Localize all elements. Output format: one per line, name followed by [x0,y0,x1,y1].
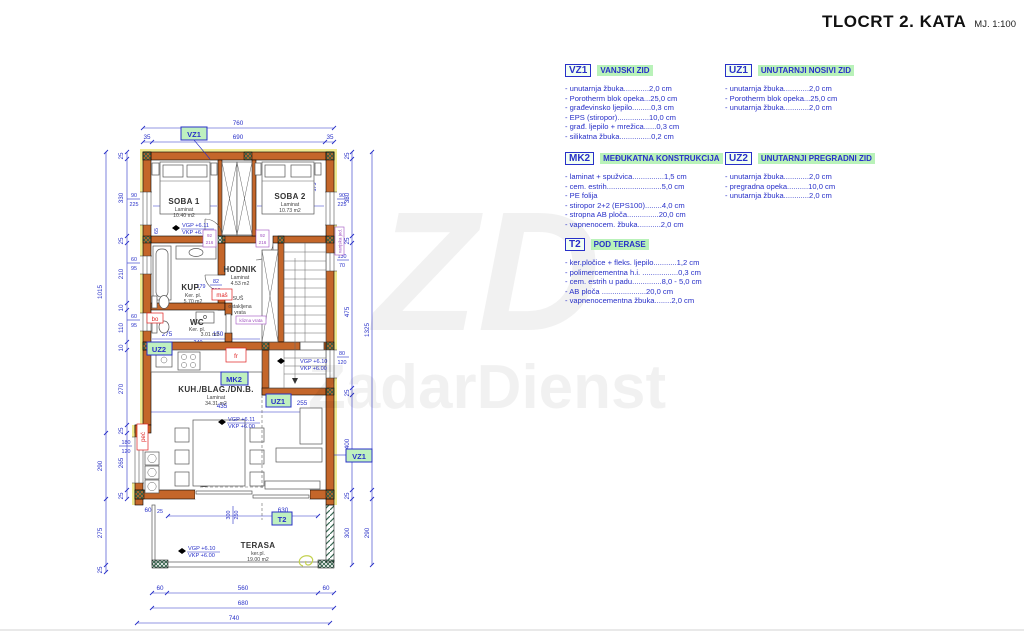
door-tag-1-h: 216 [206,240,214,245]
dim-l25b: 25 [118,237,125,245]
label-bo: bo [152,317,159,323]
level-vgp611-b: VGP +6.11 [228,417,255,423]
win-mark-70: 70 [339,263,345,269]
legend-uz1-item: - unutarnja žbuka............2,0 cm [725,84,885,94]
legend-uz2-tag: UZ2 [725,152,752,165]
room-soba2-area: 10.73 m2 [279,208,301,214]
legend-vz1-item: - unutarnja žbuka............2,0 cm [565,84,725,94]
room-kuh: KUH./BLAG./DN.B. [178,385,253,394]
dim-t25: 25 [157,509,163,515]
dim-760: 760 [233,120,244,127]
dim-82: 82 [213,279,219,285]
room-kup-area: 5.70 m2 [184,299,203,305]
win-mark-120a: 120 [122,449,131,455]
dim-l110: 110 [118,322,125,333]
room-soba1-area: 10.40 m2 [173,213,195,219]
tag-vz1-top: VZ1 [187,130,201,139]
legend-t2-tag: T2 [565,238,585,251]
dim-r25d: 25 [344,492,351,500]
room-wc-area: 3.01 m2 [201,332,220,338]
dim-b60r: 60 [322,585,330,592]
win-mark-95b: 95 [131,323,137,329]
dim-l25c: 25 [118,427,125,435]
room-hodnik-area: 4.53 m2 [231,281,250,287]
tag-vz1-right: VZ1 [352,452,366,461]
window-soba2 [325,192,337,225]
dim-t60: 60 [144,507,152,514]
legend-mk2-item: - laminat + spužvica...............1,5 c… [565,172,725,182]
dim-t300: 300 [226,511,232,520]
door-tag-klizna: klizna vrata [239,318,263,323]
dim-680: 680 [238,600,249,607]
dim-l270: 270 [118,383,125,394]
legend-t2: T2 POD TERASE - ker.pločice + fleks. lje… [565,238,745,306]
legend-t2-item: - vapnenocementna žbuka........2,0 cm [565,296,745,306]
label-sus: SUŠ [233,295,244,302]
dim-255: 255 [297,400,308,407]
label-fr: fr [234,354,238,360]
dim-35r: 35 [326,134,334,141]
legend-vz1-item: - EPS (stiropor)...............10,0 cm [565,113,725,123]
room-soba2: SOBA 2 [274,192,306,201]
dim-l10b: 10 [118,344,125,352]
legend-mk2-tag: MK2 [565,152,594,165]
window-kup [140,256,152,274]
room-soba1: SOBA 1 [168,197,200,206]
legend-mk2-item: - PE folija [565,191,725,201]
win-mark-225r: 225 [338,202,347,208]
tag-mk2: MK2 [226,375,242,384]
legend-vz1-item: - Porotherm blok opeka...25,0 cm [565,94,725,104]
legend-t2-title: POD TERASE [591,239,649,250]
dim-l330: 330 [118,192,125,203]
dim-690: 690 [233,134,244,141]
legend-uz1: UZ1 UNUTARNJI NOSIVI ZID - unutarnja žbu… [725,64,885,113]
window-soba1 [140,192,152,225]
legend-vz1-title: VANJSKI ZID [597,65,652,76]
win-mark-60b: 60 [131,314,137,320]
legend-vz1: VZ1 VANJSKI ZID - unutarnja žbuka.......… [565,64,725,142]
label-pec: peć [141,432,147,442]
floorplan-page: 760 35 690 35 25 330 25 210 10 110 10 27… [0,0,1024,631]
legend-t2-item: - polimercementna h.i. .................… [565,268,745,278]
legend-vz1-tag: VZ1 [565,64,591,77]
legend-mk2-item: - stiropor 2+2 (EPS100)........4,0 cm [565,201,725,211]
level-vkp600-b: VKP +6.00 [228,424,255,430]
dim-r400: 400 [344,438,351,449]
legend-mk2: MK2 MEĐUKATNA KONSTRUKCIJA - laminat + s… [565,152,725,230]
dim-r290: 290 [364,527,371,538]
dim-l265: 265 [118,457,125,468]
terrace [152,503,334,568]
dim-740: 740 [229,615,240,622]
watermark-text: ZadarDienst [308,353,666,422]
dim-l25a: 25 [118,152,125,160]
label-ostakljena-2: vrata [234,310,246,316]
level-vgp611-a: VGP +6.11 [182,223,209,229]
dim-560: 560 [238,585,249,592]
dim-l210: 210 [118,268,125,279]
room-kup: KUP. [181,283,200,292]
dim-b60l: 60 [156,585,164,592]
win-mark-180: 180 [122,440,131,446]
legend-uz2-item: - pregradna opeka..........10,0 cm [725,182,885,192]
label-vanjska-jedinica: vanjska jed. [338,229,343,253]
page-title: TLOCRT 2. KATA [822,12,966,32]
room-hodnik: HODNIK [223,265,256,274]
dim-l10a: 10 [118,304,125,312]
legend-uz1-title: UNUTARNJI NOSIVI ZID [758,65,854,76]
dim-l25e: 25 [97,566,104,574]
win-mark-90r: 90 [339,193,345,199]
legend-vz1-item: - silikatna žbuka...............0,2 cm [565,132,725,142]
legend-mk2-title: MEĐUKATNA KONSTRUKCIJA [600,153,722,164]
dim-r25a: 25 [344,152,351,160]
legend-mk2-item: - cem. estrih..........................5… [565,182,725,192]
legend-uz1-item: - unutarnja žbuka............2,0 cm [725,103,885,113]
tag-t2: T2 [278,515,287,524]
legend-uz2: UZ2 UNUTARNJI PREGRADNI ZID - unutarnja … [725,152,885,201]
level-vkp600-d: VKP +6.00 [188,553,215,559]
dim-35l: 35 [143,134,151,141]
dim-l25d: 25 [118,492,125,500]
tag-uz2: UZ2 [152,345,166,354]
legend-uz1-tag: UZ1 [725,64,752,77]
win-mark-90: 90 [131,193,137,199]
room-terasa-area: 19.00 m2 [247,557,269,563]
legend-t2-item: - AB ploča .....................20,0 cm [565,287,745,297]
window-stairs [325,253,337,271]
legend-mk2-item: - vapnenocem. žbuka...........2,0 cm [565,220,725,230]
win-mark-95a: 95 [131,266,137,272]
legend-uz1-item: - Porotherm blok opeka...25,0 cm [725,94,885,104]
legend-vz1-item: - građevinsko ljepilo.........0,3 cm [565,103,725,113]
dim-1015: 1015 [97,285,104,300]
legend-uz2-item: - unutarnja žbuka............2,0 cm [725,172,885,182]
door-tag-2-w: 92 [260,233,266,238]
label-mas: maš [216,293,227,299]
room-kuh-area: 34.31 m2 [205,401,227,407]
legend-uz2-title: UNUTARNJI PREGRADNI ZID [758,153,875,164]
room-terasa: TERASA [241,541,276,550]
dim-r475: 475 [344,306,351,317]
legend-t2-item: - cem. estrih u padu..............8,0 - … [565,277,745,287]
room-wc: WC [190,318,204,327]
scale-label: MJ. 1:100 [974,19,1016,30]
title-block: TLOCRT 2. KATA MJ. 1:100 [822,12,1016,32]
dim-r25b: 25 [344,237,351,245]
legend-uz2-item: - unutarnja žbuka............2,0 cm [725,191,885,201]
door-tag-1-w: 92 [207,233,213,238]
dim-t250: 250 [234,511,240,520]
dim-r300: 300 [344,527,351,538]
dim-1325: 1325 [364,323,371,338]
legend-mk2-item: - stropna AB ploča...............20,0 cm [565,210,725,220]
legend-t2-item: - ker.pločice + fleks. ljepilo..........… [565,258,745,268]
legend-vz1-item: - građ. ljepilo + mrežica......0,3 cm [565,122,725,132]
level-vgp610-b: VGP +6.10 [188,546,215,552]
win-mark-225: 225 [130,202,139,208]
dim-l275: 275 [97,527,104,538]
dim-65: 65 [154,228,160,234]
door-tag-2-h: 216 [259,240,267,245]
win-mark-60a: 60 [131,257,137,263]
tag-uz1: UZ1 [271,397,285,406]
dim-l290: 290 [97,460,104,471]
